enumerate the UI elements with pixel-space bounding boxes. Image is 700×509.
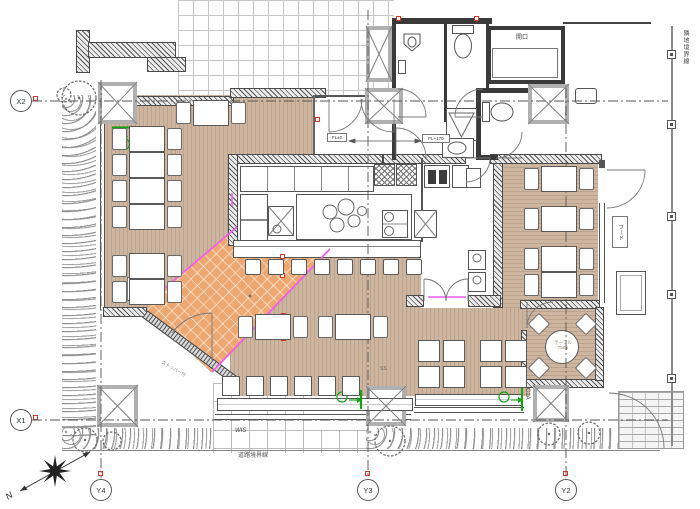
table-group [112, 204, 182, 230]
toilet-tank [452, 25, 474, 34]
bar-stool [406, 259, 422, 275]
chair [238, 316, 253, 338]
bench-table [222, 376, 240, 396]
chair [579, 274, 594, 296]
boundary-marker [667, 290, 676, 299]
boundary-marker [667, 50, 676, 59]
boundary-marker [667, 212, 676, 221]
chair [167, 206, 182, 228]
glass-wall-left [100, 110, 105, 310]
table-group [112, 253, 182, 279]
revision-marker [33, 415, 38, 420]
chair [112, 255, 127, 277]
table-group [112, 126, 182, 152]
toilet-tank [482, 102, 490, 122]
revision-marker [98, 471, 103, 476]
axis-label: Y4 [96, 486, 105, 495]
bar-stool [245, 259, 261, 275]
table-group [318, 314, 388, 340]
chair [524, 274, 539, 296]
kitchen-counter-left [240, 194, 268, 246]
stove-burner [374, 164, 395, 186]
wall-kitchen-left [228, 154, 238, 246]
chair [112, 180, 127, 202]
table-group [112, 279, 182, 305]
table [480, 366, 502, 388]
station-label: SS [380, 366, 387, 372]
chair [167, 281, 182, 303]
table [129, 204, 165, 230]
chair [112, 206, 127, 228]
table [255, 314, 291, 340]
glass-wall-right [599, 203, 605, 303]
fl-level-right: FL+170 [422, 134, 450, 143]
hood-label: フード [612, 216, 628, 248]
wash-sink [468, 272, 486, 292]
table [129, 253, 165, 279]
wall-corridor-left [313, 95, 315, 161]
road-boundary-label: 道路境界線 [238, 450, 268, 459]
range-burner-dark [428, 170, 436, 184]
chair [293, 316, 308, 338]
revision-marker [315, 117, 320, 122]
bench-table [270, 376, 288, 396]
wall-roundroom-top [520, 300, 600, 309]
table-group [524, 206, 594, 232]
chair [318, 316, 333, 338]
column [98, 82, 137, 124]
range-unit [424, 165, 450, 188]
table [443, 366, 465, 388]
opening-label: 開口 [516, 32, 528, 41]
chair [579, 168, 594, 190]
dish-station [466, 168, 481, 188]
brick-paving [618, 391, 684, 449]
table [129, 279, 165, 305]
boundary-line-right [671, 26, 673, 446]
table [129, 126, 165, 152]
bar-stool [337, 259, 353, 275]
chair [524, 248, 539, 270]
table-group [112, 178, 182, 204]
axis-marker-x1: X1 [10, 409, 32, 431]
table [505, 340, 527, 362]
chair [524, 168, 539, 190]
wall-wc-bottom [476, 155, 498, 160]
sink-unit [268, 206, 294, 236]
wall-kitchen-top [228, 154, 383, 164]
table [541, 166, 577, 192]
boundary-marker [667, 120, 676, 129]
bar-stool [291, 259, 307, 275]
table [443, 340, 465, 362]
round-table-size: 750φ [549, 345, 577, 350]
chair [112, 128, 127, 150]
wall-hatch-L2 [88, 42, 176, 58]
chair [167, 128, 182, 150]
eave-line-topright [563, 22, 651, 24]
chair [167, 180, 182, 202]
wall-hatch-L3 [147, 57, 186, 72]
table-group [112, 152, 182, 178]
axis-label: Y2 [561, 486, 570, 495]
axis-marker-y4: Y4 [90, 479, 112, 501]
table-group [524, 166, 594, 192]
wall-right-top-stub [599, 160, 605, 168]
planting-strip-road-right [366, 428, 660, 449]
wash-sink [468, 250, 486, 270]
bench-table [246, 376, 264, 396]
table [480, 340, 502, 362]
wall-fixture [398, 60, 406, 74]
road-edge-line [62, 450, 660, 451]
wall-dining-top-mid [230, 88, 326, 98]
column [97, 385, 138, 427]
room-counter [492, 48, 558, 78]
revision-marker [563, 471, 568, 476]
boundary-marker [667, 374, 676, 383]
wall-room-left [487, 26, 491, 84]
axis-marker-y2: Y2 [555, 479, 577, 501]
window-bench-right [415, 394, 523, 406]
chair [167, 154, 182, 176]
wall-kitchen-bottom-b [468, 295, 501, 307]
fl-left-text: FL±0 [332, 135, 342, 140]
column [365, 88, 403, 124]
table-group [176, 100, 246, 126]
table-group [524, 246, 594, 272]
double-sink [382, 210, 408, 238]
axis-label: Y3 [363, 486, 372, 495]
north-label: N [4, 489, 15, 501]
chair [176, 102, 191, 124]
planting-strip-road-left [62, 428, 213, 449]
range-burner-dark [439, 170, 447, 184]
bench-table [318, 376, 336, 396]
table-group [238, 314, 308, 340]
wall-room-top [487, 26, 565, 30]
table [541, 272, 577, 298]
table [505, 366, 527, 388]
wall-wc-top [476, 88, 530, 93]
revision-marker [33, 96, 38, 101]
floor-plan-canvas: X2 X1 Y4 Y3 Y2 開口 隣地境界線 道路境界線 WIS ストッパー付… [0, 0, 700, 509]
axis-marker-x2: X2 [10, 90, 32, 112]
chair [112, 281, 127, 303]
chair [167, 255, 182, 277]
round-table-label: テーブル 750φ [549, 340, 577, 351]
adjacent-boundary-label: 隣地境界線 [681, 30, 690, 65]
column [528, 84, 569, 124]
planting-strip-left [62, 95, 96, 440]
table-group [524, 272, 594, 298]
wall-rightdining-top-b [490, 154, 602, 164]
revision-marker [396, 16, 401, 21]
stove-burner [396, 164, 417, 186]
glass-wall-bottom-right [414, 407, 524, 413]
table [335, 314, 371, 340]
bar-stool [383, 259, 399, 275]
dumbwaiter-shaft [446, 108, 477, 141]
chair [231, 102, 246, 124]
table [541, 246, 577, 272]
table [129, 152, 165, 178]
chair [112, 154, 127, 176]
bar-stool [268, 259, 284, 275]
revision-marker [365, 471, 370, 476]
chair [373, 316, 388, 338]
table [193, 100, 229, 126]
fl-level-left: FL±0 [327, 133, 347, 142]
table [418, 366, 440, 388]
wall-dining-bottom-left [103, 307, 147, 317]
chair [524, 208, 539, 230]
wall-kitchen-right [493, 160, 503, 308]
fl-right-text: FL+170 [428, 136, 443, 141]
table [418, 340, 440, 362]
water-heater [575, 88, 597, 104]
wis-label: WIS [235, 428, 246, 434]
wall-toilet-divider [444, 18, 447, 122]
wall-kitchen-bottom-a [406, 295, 424, 307]
hood-label-text: フード [617, 224, 624, 241]
stopper-label: ストッパー付 [160, 360, 186, 379]
axis-label: X2 [16, 97, 25, 106]
table [129, 178, 165, 204]
bench-table [342, 376, 360, 396]
compass-rose: N [4, 452, 90, 502]
table [541, 206, 577, 232]
wall-roundroom-right [595, 307, 604, 381]
column-label-c1a: C1A [524, 388, 530, 400]
chair [579, 248, 594, 270]
kitchen-lift-box [414, 210, 437, 238]
axis-marker-y3: Y3 [357, 479, 379, 501]
wall-room-right [561, 26, 565, 84]
kitchen-counter-top [240, 166, 374, 192]
column [533, 385, 569, 422]
chair [579, 208, 594, 230]
bar-stool [314, 259, 330, 275]
outdoor-unit [616, 271, 646, 315]
window-bench-left [217, 398, 413, 411]
bar-counter [233, 240, 421, 258]
bar-stool [360, 259, 376, 275]
axis-label: X1 [16, 416, 25, 425]
bench-table [294, 376, 312, 396]
revision-marker [474, 16, 479, 21]
column [366, 26, 392, 82]
